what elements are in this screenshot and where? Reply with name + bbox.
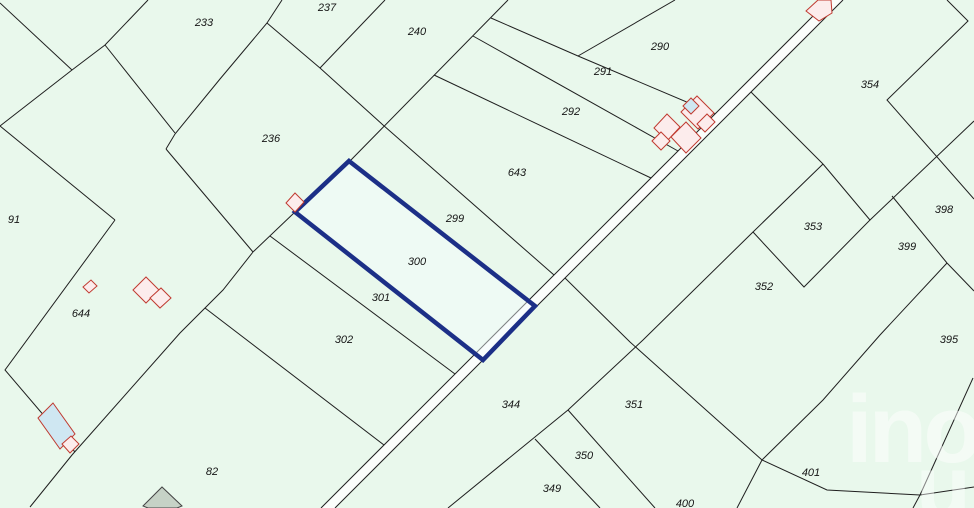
cadastral-map-viewport[interactable]: 2332372402902912923542366433989129935339… [0,0,974,508]
parcel-label-349[interactable]: 349 [543,483,561,495]
parcel-label-237[interactable]: 237 [317,2,337,14]
parcel-label-299[interactable]: 299 [445,213,464,225]
parcel-label-644[interactable]: 644 [72,308,90,320]
parcel-label-643[interactable]: 643 [508,167,527,179]
parcel-label-236[interactable]: 236 [261,133,281,145]
parcel-label-344[interactable]: 344 [502,399,520,411]
parcel-label-400[interactable]: 400 [676,498,695,508]
parcel-label-82[interactable]: 82 [206,466,218,478]
parcel-label-350[interactable]: 350 [575,450,594,462]
parcel-label-290[interactable]: 290 [650,41,670,53]
parcel-label-351[interactable]: 351 [625,399,643,411]
cadastral-map[interactable]: 2332372402902912923542366433989129935339… [0,0,974,508]
map-background [0,0,974,508]
watermark-logo-fragment: u [916,438,971,508]
parcel-label-91[interactable]: 91 [8,214,20,226]
parcel-label-353[interactable]: 353 [804,221,823,233]
parcel-label-401[interactable]: 401 [802,467,820,479]
parcel-label-398[interactable]: 398 [935,204,954,216]
parcel-label-240[interactable]: 240 [407,26,427,38]
parcel-label-300[interactable]: 300 [408,256,427,268]
parcel-label-395[interactable]: 395 [940,334,959,346]
parcel-label-352[interactable]: 352 [755,281,773,293]
parcel-label-233[interactable]: 233 [194,17,214,29]
parcel-label-399[interactable]: 399 [898,241,916,253]
parcel-label-291[interactable]: 291 [593,66,612,78]
parcel-label-354[interactable]: 354 [861,79,879,91]
parcel-label-301[interactable]: 301 [372,292,390,304]
parcel-label-292[interactable]: 292 [561,106,580,118]
parcel-label-302[interactable]: 302 [335,334,353,346]
